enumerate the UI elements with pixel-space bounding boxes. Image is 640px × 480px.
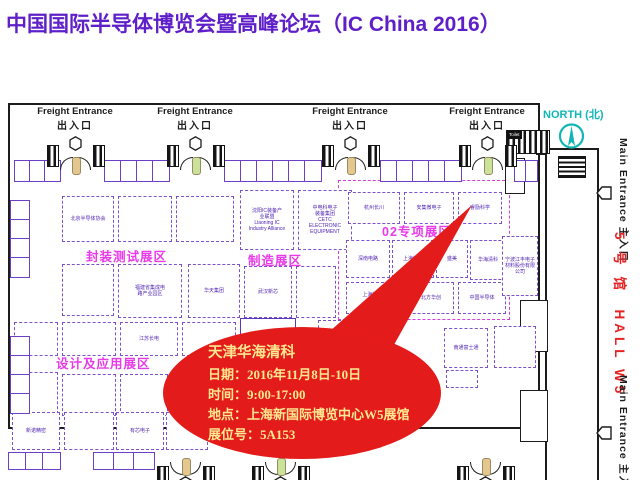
booth	[64, 412, 114, 450]
door-leaf	[182, 458, 191, 476]
door-post	[213, 145, 225, 167]
freight-entrance-en: Freight Entrance	[20, 106, 130, 117]
door-leaf	[277, 458, 286, 476]
stairs-icon	[558, 156, 586, 178]
perimeter-booth	[133, 452, 155, 470]
entrance-hexagon-icon	[69, 136, 82, 151]
entrance-arrow-icon	[596, 426, 612, 440]
booth: 宁波江丰电子 材料股份有限 公司	[502, 236, 538, 296]
door-post	[252, 466, 264, 480]
door-post	[47, 145, 59, 167]
annex-building	[545, 148, 599, 480]
main-entrance-en: Main Entrance	[617, 138, 629, 223]
toilet-label: Toilet	[507, 131, 522, 139]
perimeter-booth	[93, 452, 115, 470]
door-leaf	[347, 157, 356, 175]
freight-entrance-cn: 出入口	[140, 117, 250, 132]
freight-entrance-cn: 出入口	[20, 117, 130, 132]
page-title: 中国国际半导体博览会暨高峰论坛（IC China 2016）	[6, 8, 636, 38]
freight-entrance-top: Freight Entrance出入口	[432, 106, 542, 132]
freight-entrance-cn: 出入口	[295, 117, 405, 132]
booth	[118, 196, 172, 242]
hall-label: 5 号 馆 HALL W5	[611, 232, 631, 397]
booth: 沈阳IC装备产 业联盟 Liaoning IC Industry Allianc…	[240, 190, 294, 250]
main-entrance-bottom-label: Main Entrance 主入口	[617, 375, 632, 480]
callout-text: 天津华海清科 日期：2016年11月8日-10日 时间：9:00-17:00 地…	[208, 341, 443, 445]
perimeter-booth	[10, 257, 30, 278]
zone-label-3: 设计及应用展区	[56, 353, 151, 372]
entrance-hexagon-icon	[481, 136, 494, 151]
booth	[62, 322, 116, 356]
perimeter-booth	[10, 219, 30, 240]
door-leaf	[482, 458, 491, 476]
door-post	[368, 145, 380, 167]
perimeter-booth	[42, 452, 61, 470]
perimeter-booth	[10, 336, 30, 357]
entrance-hexagon-icon	[274, 476, 287, 480]
door-post	[203, 466, 215, 480]
booth	[446, 370, 478, 388]
zone-label-1: 制造展区	[248, 250, 302, 269]
booth: 武汉新芯	[244, 266, 292, 318]
annex-room	[520, 390, 548, 442]
perimeter-booth	[10, 355, 30, 376]
perimeter-booth	[525, 160, 538, 182]
door-post	[322, 145, 334, 167]
freight-entrance-en: Freight Entrance	[140, 106, 250, 117]
main-entrance-cn: 主入口	[617, 464, 628, 480]
callout-company: 天津华海清科	[208, 341, 443, 362]
door-post	[298, 466, 310, 480]
callout-booth: 展位号：5A153	[208, 425, 443, 445]
zone-label-0: 封装测试展区	[86, 246, 167, 265]
door-post	[167, 145, 179, 167]
callout-venue: 地点：上海新国际博览中心W5展馆	[208, 405, 443, 425]
booth: 江苏长电	[120, 322, 178, 356]
floor-plan-page: 中国国际半导体博览会暨高峰论坛（IC China 2016） Toilet To…	[0, 0, 640, 480]
perimeter-booth	[10, 200, 30, 221]
booth: 华天集团	[188, 264, 240, 318]
perimeter-booth	[10, 238, 30, 259]
north-compass-icon	[558, 120, 585, 151]
freight-entrance-top: Freight Entrance出入口	[295, 106, 405, 132]
booth	[62, 264, 114, 316]
hall-label-cn: 5 号 馆	[612, 232, 627, 294]
door-post	[505, 145, 517, 167]
callout-time: 时间：9:00-17:00	[208, 385, 443, 405]
door-post	[157, 466, 169, 480]
perimeter-booth	[113, 452, 135, 470]
freight-entrance-en: Freight Entrance	[432, 106, 542, 117]
booth	[176, 196, 234, 242]
booth	[62, 374, 116, 416]
perimeter-booth	[10, 374, 30, 395]
callout-date: 日期：2016年11月8日-10日	[208, 365, 443, 385]
freight-entrance-en: Freight Entrance	[295, 106, 405, 117]
booth: 福建省集成电 路产业园区	[118, 264, 182, 318]
door-leaf	[72, 157, 81, 175]
freight-entrance-cn: 出入口	[432, 117, 542, 132]
freight-entrance-top: Freight Entrance出入口	[20, 106, 130, 132]
door-post	[459, 145, 471, 167]
door-post	[457, 466, 469, 480]
door-post	[93, 145, 105, 167]
entrance-hexagon-icon	[179, 476, 192, 480]
entrance-hexagon-icon	[344, 136, 357, 151]
perimeter-booth	[304, 160, 322, 182]
booth: 有芯电子	[116, 412, 164, 450]
entrance-arrow-icon	[596, 186, 612, 200]
booth	[494, 326, 536, 368]
booth: 北京半导体协会	[62, 196, 114, 242]
door-leaf	[192, 157, 201, 175]
main-entrance-en: Main Entrance	[617, 375, 629, 460]
door-leaf	[484, 157, 493, 175]
booth: 新诺精密	[12, 412, 60, 450]
entrance-hexagon-icon	[189, 136, 202, 151]
entrance-hexagon-icon	[479, 476, 492, 480]
door-post	[503, 466, 515, 480]
freight-entrance-top: Freight Entrance出入口	[140, 106, 250, 132]
booth	[120, 374, 168, 416]
perimeter-booth	[10, 393, 30, 414]
